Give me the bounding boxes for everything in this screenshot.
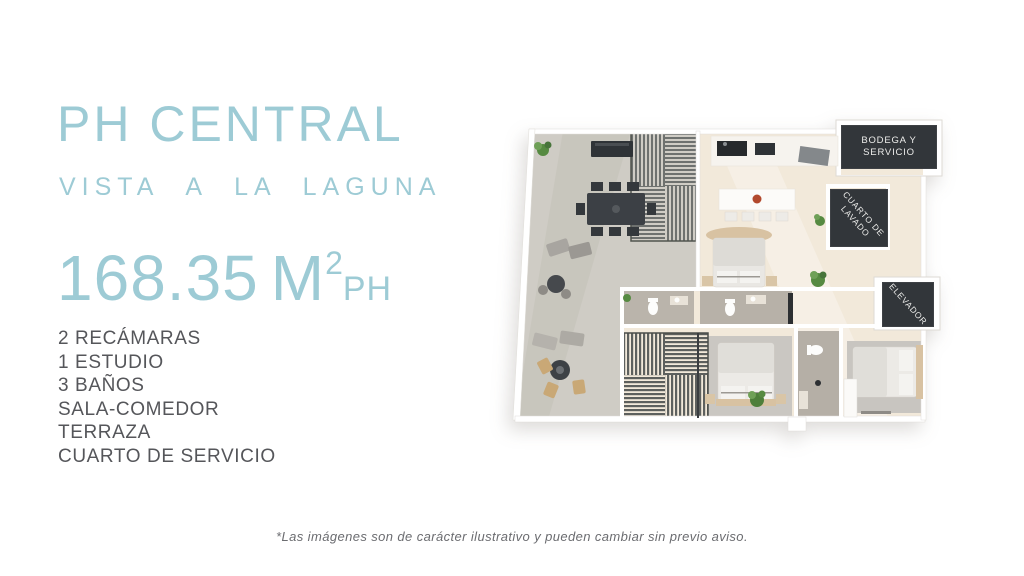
feature-recamaras: 2 RECÁMARAS xyxy=(58,327,276,351)
bodega-line2: SERVICIO xyxy=(863,147,915,159)
feature-cuarto-servicio: CUARTO DE SERVICIO xyxy=(58,445,276,469)
bodega-line1: BODEGA Y xyxy=(861,135,916,147)
room-label-elevador: ELEVADOR xyxy=(882,282,934,327)
area-value: 168.35 xyxy=(57,242,259,314)
disclaimer-text: *Las imágenes son de carácter ilustrativ… xyxy=(0,529,1024,544)
area-unit: M xyxy=(271,242,325,314)
feature-terraza: TERRAZA xyxy=(58,421,276,445)
page-title: PH CENTRAL xyxy=(57,99,404,149)
room-label-lavado: CUARTO DE LAVADO xyxy=(830,189,888,247)
page-subtitle: Vista a la Laguna xyxy=(59,165,441,201)
area-suffix: PH xyxy=(343,270,392,308)
feature-banos: 3 BAÑOS xyxy=(58,374,276,398)
feature-sala-comedor: SALA-COMEDOR xyxy=(58,398,276,422)
floorplan-render: BODEGA Y SERVICIO CUARTO DE LAVADO ELEVA… xyxy=(503,93,965,493)
elevador-text: ELEVADOR xyxy=(887,282,930,328)
area-figure: 168.35M2PH xyxy=(57,246,392,310)
room-label-bodega: BODEGA Y SERVICIO xyxy=(841,125,937,169)
area-superscript: 2 xyxy=(325,245,343,281)
feature-list: 2 RECÁMARAS 1 ESTUDIO 3 BAÑOS SALA-COMED… xyxy=(58,327,276,469)
feature-estudio: 1 ESTUDIO xyxy=(58,351,276,375)
